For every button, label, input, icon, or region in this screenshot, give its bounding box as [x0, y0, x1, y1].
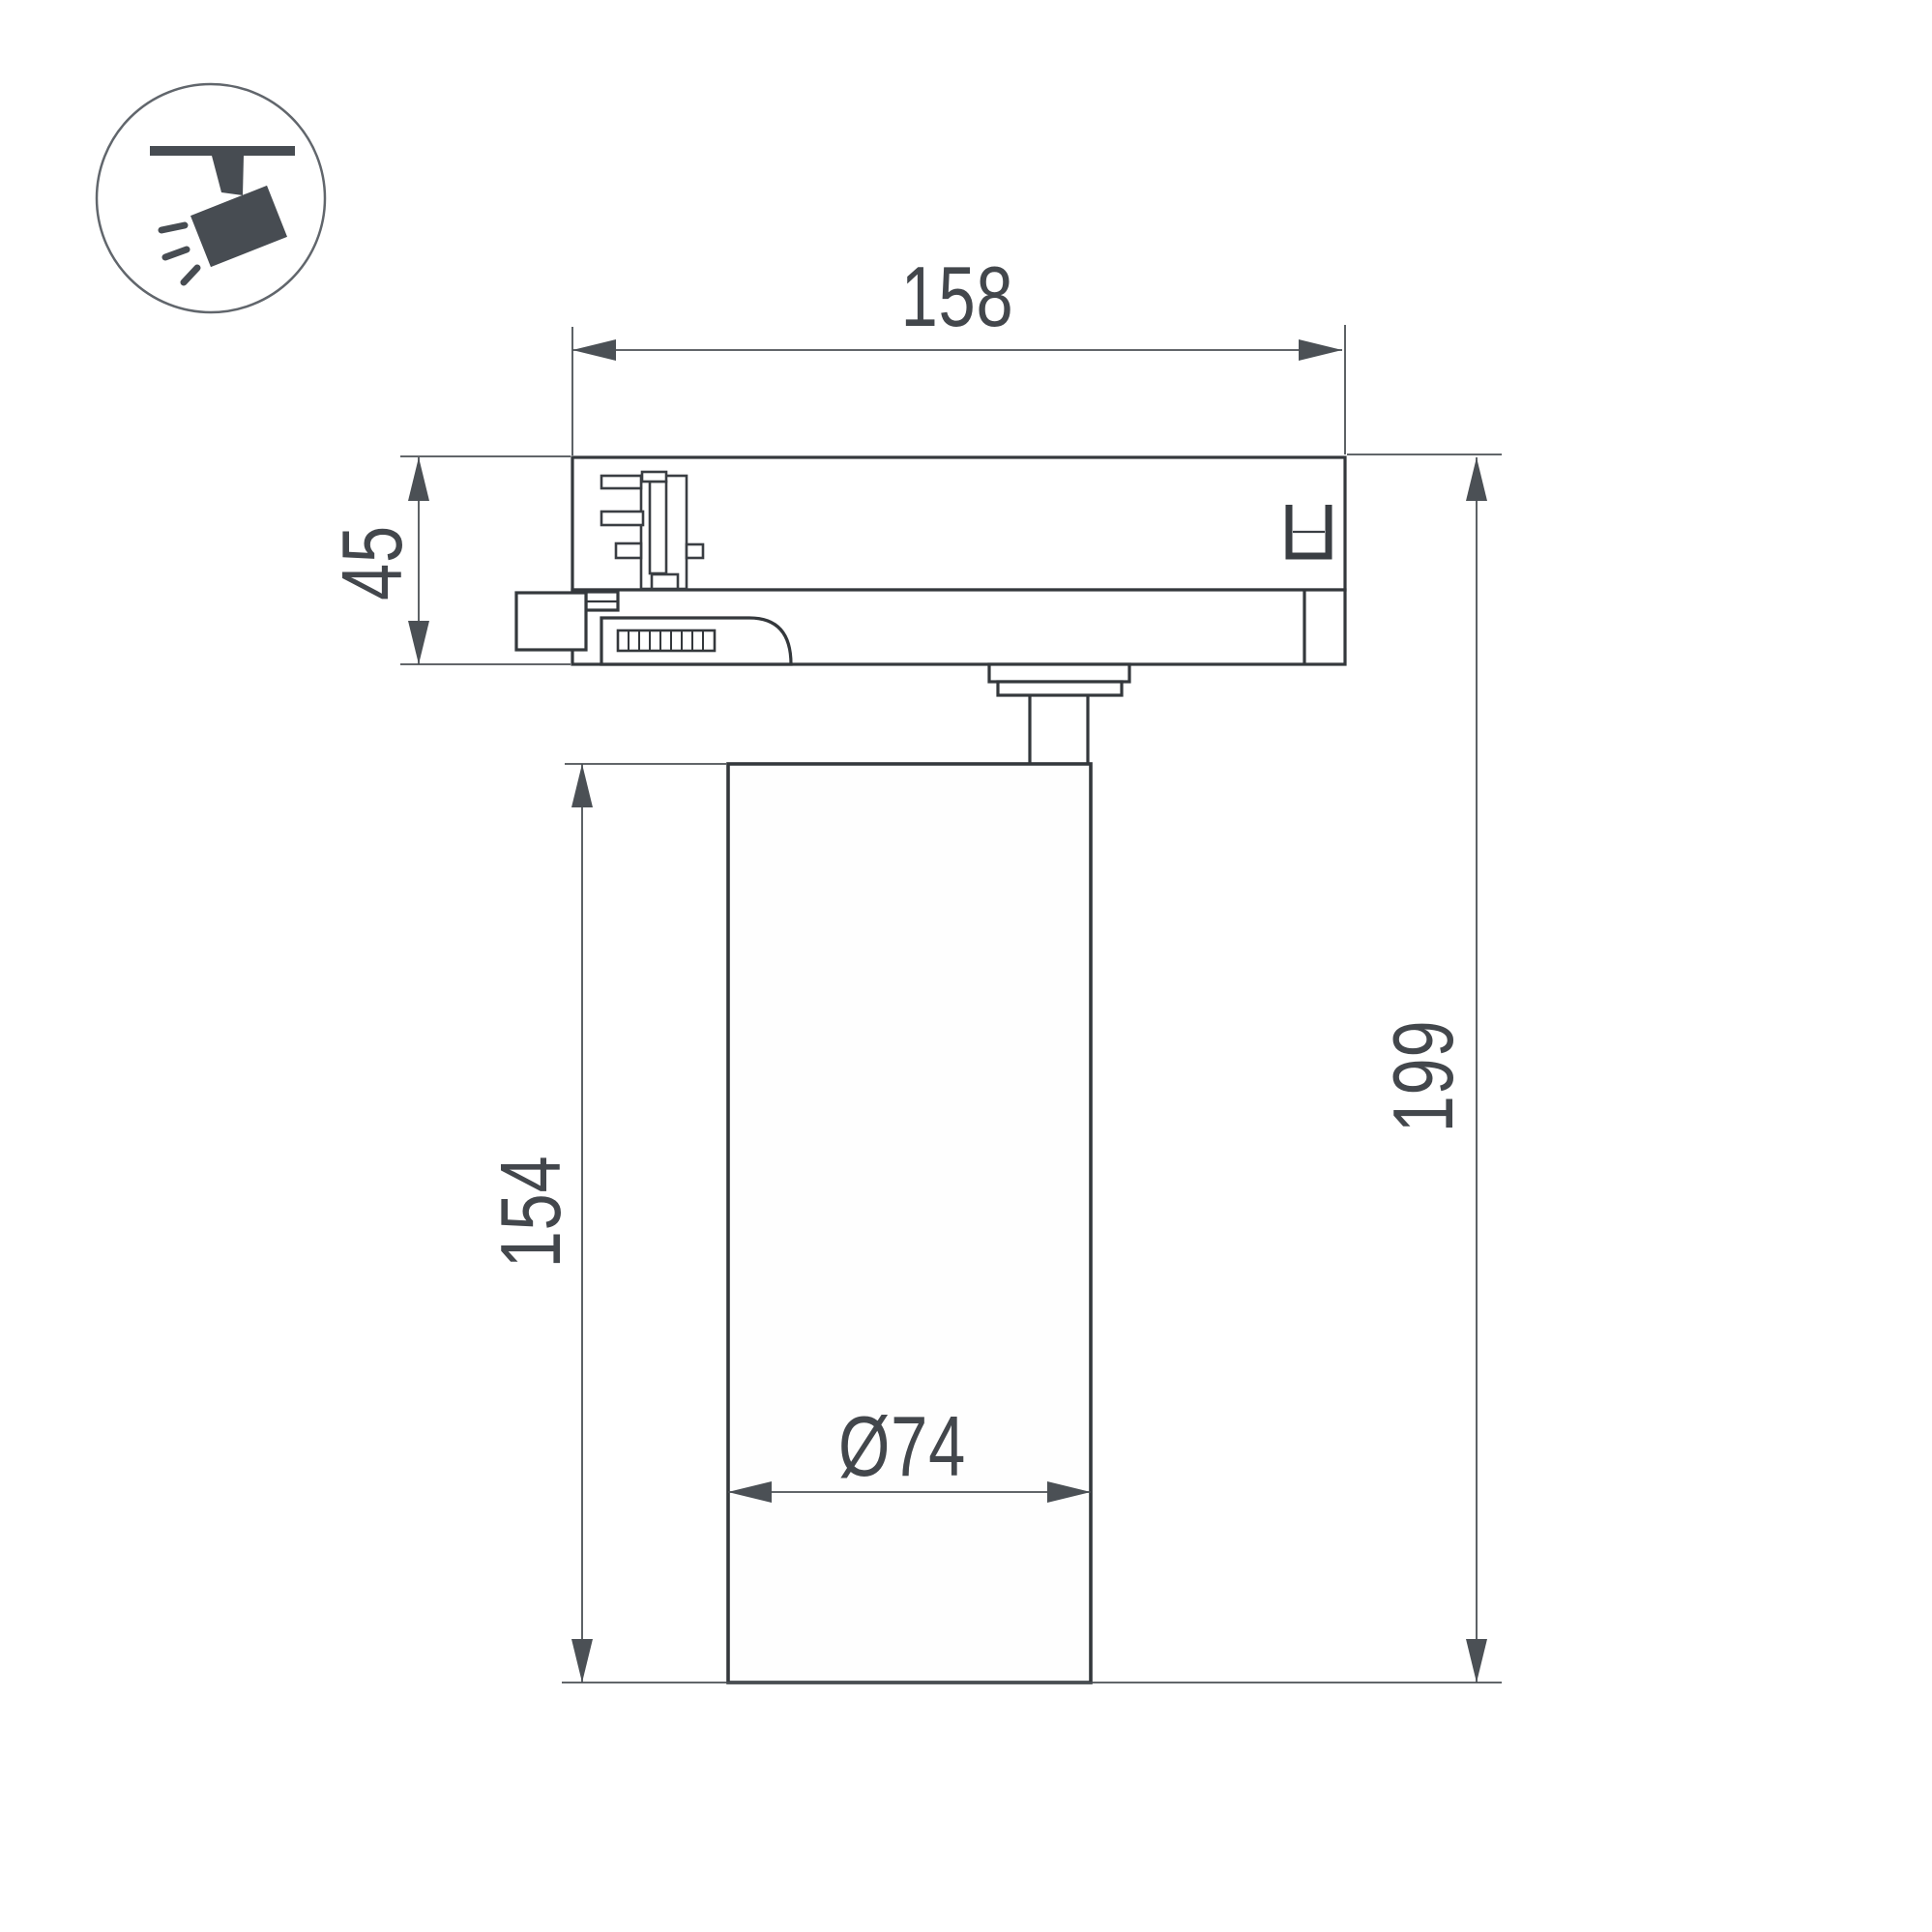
dim-158-arrow-left: [572, 339, 616, 361]
dim-154-arrow-bottom: [571, 1639, 593, 1683]
latch-ribbed-slider: [618, 630, 715, 651]
connector-prong-bottom: [616, 543, 641, 558]
connector-right-tab: [687, 544, 703, 558]
icon-circle: [97, 84, 325, 312]
dim-label-body-diameter: Ø74: [838, 1397, 966, 1496]
dim-154-arrow-top: [571, 764, 593, 807]
connector-prong-middle: [601, 512, 643, 525]
drawing-canvas: 158 45 154 199 Ø74: [0, 0, 1932, 1932]
latch-box: [516, 593, 586, 650]
adapter-upper-deck: [572, 457, 1345, 590]
lamp-body-cylinder: [728, 764, 1091, 1683]
dim-label-track-adapter-length: 158: [901, 248, 1014, 346]
icon-track-rail: [150, 146, 295, 156]
dim-199-arrow-top: [1466, 457, 1487, 501]
track-spotlight-icon: [97, 84, 325, 312]
connector-prong-top: [601, 476, 641, 488]
dim-label-total-height: 199: [1374, 1020, 1473, 1133]
mount-step-2: [998, 682, 1122, 695]
dim-154: [565, 764, 726, 1683]
dim-45-arrow-top: [408, 457, 429, 501]
swivel-mount: [989, 664, 1129, 764]
connector-cap: [642, 472, 666, 482]
mount-step-1: [989, 664, 1129, 682]
connector-stem: [650, 482, 666, 573]
connector-foot: [652, 574, 678, 589]
dim-label-body-height: 154: [482, 1156, 580, 1269]
dim-158-arrow-right: [1299, 339, 1342, 361]
dim-label-track-adapter-height: 45: [323, 525, 422, 600]
dim-199-arrow-bottom: [1466, 1639, 1487, 1683]
dim-45-arrow-bottom: [408, 621, 429, 664]
